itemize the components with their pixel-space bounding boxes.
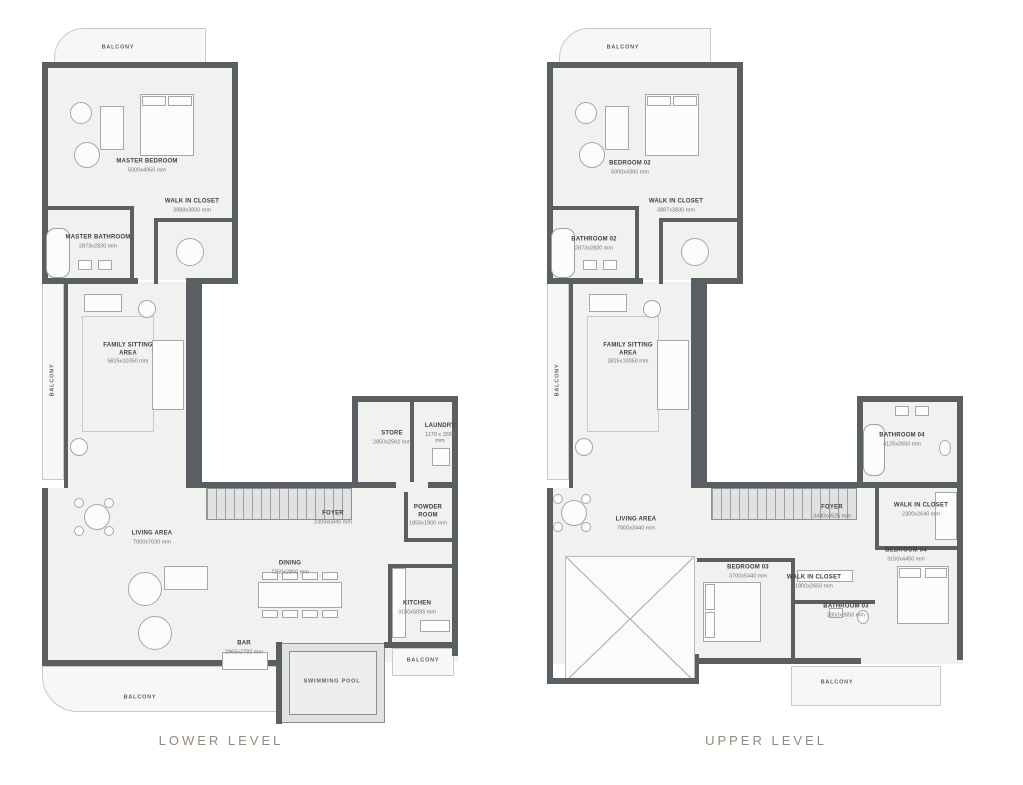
wall-segment [875, 488, 879, 548]
furniture [138, 616, 172, 650]
rug [587, 316, 659, 432]
furniture [70, 102, 92, 124]
furniture [262, 610, 278, 618]
balcony-area [547, 282, 569, 480]
wall-segment [154, 218, 158, 284]
furniture [939, 440, 951, 456]
furniture [282, 572, 298, 580]
wall-segment [42, 206, 134, 210]
swimming-pool-area [282, 644, 384, 722]
wall-segment [795, 600, 875, 604]
furniture [829, 608, 843, 618]
furniture [128, 572, 162, 606]
wall-segment [547, 678, 697, 684]
furniture [575, 102, 597, 124]
furniture [925, 568, 947, 578]
furniture [138, 300, 156, 318]
wall-segment [697, 558, 793, 562]
wall-segment [404, 538, 458, 542]
bathtub-icon [551, 228, 575, 278]
wall-segment [276, 642, 282, 724]
wall-segment [547, 206, 639, 210]
furniture [258, 582, 342, 608]
stairs [206, 488, 352, 520]
balcony-area [42, 666, 280, 712]
lower-level-plan: BALCONYMASTER BEDROOM5000x4950 mmWALK IN… [40, 10, 460, 730]
furniture [603, 260, 617, 270]
wall-segment [404, 492, 408, 540]
wall-segment [186, 278, 202, 488]
furniture [100, 106, 124, 150]
balcony-area [392, 648, 454, 676]
furniture [895, 406, 909, 416]
stairs [711, 488, 857, 520]
wall-segment [232, 62, 238, 284]
wall-segment [695, 658, 861, 664]
furniture [74, 526, 84, 536]
furniture [142, 96, 166, 106]
furniture [222, 652, 268, 670]
furniture [673, 96, 697, 106]
wall-segment [857, 396, 963, 402]
furniture [74, 142, 100, 168]
furniture [705, 612, 715, 638]
wall-segment [569, 282, 573, 488]
wall-segment [857, 482, 963, 488]
furniture [643, 300, 661, 318]
furniture [647, 96, 671, 106]
furniture [176, 238, 204, 266]
balcony-area [791, 666, 941, 706]
void-opening [565, 556, 695, 682]
floor-area [352, 402, 458, 488]
wall-segment [42, 278, 138, 284]
wall-segment [42, 488, 48, 666]
furniture [420, 620, 450, 632]
wall-segment [547, 488, 553, 684]
wall-segment [42, 62, 238, 68]
wall-segment [384, 642, 458, 648]
furniture [98, 260, 112, 270]
furniture [581, 522, 591, 532]
furniture [581, 494, 591, 504]
furniture [605, 106, 629, 150]
furniture [681, 238, 709, 266]
wall-segment [957, 396, 963, 660]
furniture [322, 572, 338, 580]
furniture [583, 260, 597, 270]
furniture [657, 340, 689, 410]
furniture [262, 572, 278, 580]
furniture [78, 260, 92, 270]
wall-segment [547, 278, 643, 284]
bathtub-icon [46, 228, 70, 278]
balcony-area [42, 282, 64, 480]
lower-level-label: LOWER LEVEL [141, 733, 301, 748]
furniture [553, 494, 563, 504]
furniture [797, 570, 853, 582]
furniture [302, 572, 318, 580]
wall-segment [791, 558, 795, 662]
wall-segment [352, 396, 358, 488]
furniture [152, 340, 184, 410]
wall-segment [452, 396, 458, 656]
upper-level-label: UPPER LEVEL [686, 733, 846, 748]
wall-segment [547, 62, 743, 68]
furniture [70, 438, 88, 456]
wall-segment [352, 482, 396, 488]
furniture [164, 566, 208, 590]
wall-segment [659, 218, 743, 222]
bathtub-icon [863, 424, 885, 476]
furniture [392, 568, 406, 638]
furniture [857, 610, 869, 624]
furniture [432, 448, 450, 466]
wall-segment [691, 278, 707, 488]
furniture [899, 568, 921, 578]
wall-segment [410, 402, 414, 482]
wall-segment [659, 218, 663, 284]
furniture [302, 610, 318, 618]
furniture [104, 498, 114, 508]
wall-segment [352, 396, 458, 402]
furniture [579, 142, 605, 168]
furniture [575, 438, 593, 456]
furniture [322, 610, 338, 618]
floorplan-canvas: BALCONYMASTER BEDROOM5000x4950 mmWALK IN… [0, 0, 1023, 785]
wall-segment [130, 206, 134, 284]
rug [82, 316, 154, 432]
furniture [282, 610, 298, 618]
furniture [553, 522, 563, 532]
wall-segment [64, 282, 68, 488]
upper-level-plan: BALCONYBEDROOM 025000x4360 mmWALK IN CLO… [545, 10, 965, 715]
wall-segment [154, 218, 238, 222]
wall-segment [737, 62, 743, 284]
wall-segment [875, 546, 963, 550]
furniture [74, 498, 84, 508]
furniture [915, 406, 929, 416]
furniture [935, 492, 957, 540]
furniture [168, 96, 192, 106]
furniture [589, 294, 627, 312]
wall-segment [428, 482, 458, 488]
furniture [84, 294, 122, 312]
furniture [705, 584, 715, 610]
wall-segment [635, 206, 639, 284]
furniture [104, 526, 114, 536]
